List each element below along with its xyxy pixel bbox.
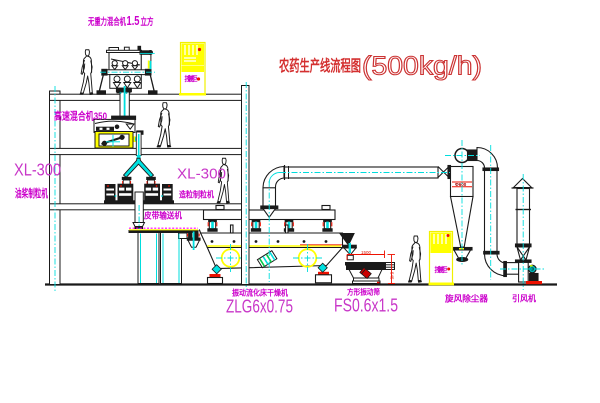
svg-text:(500kg/h): (500kg/h) xyxy=(362,53,482,81)
svg-text:ZLG6x0.75: ZLG6x0.75 xyxy=(226,296,293,317)
svg-text:XL-300: XL-300 xyxy=(14,160,61,180)
svg-text:造粒制粒机: 造粒制粒机 xyxy=(179,190,214,200)
svg-text:1.5: 1.5 xyxy=(127,14,140,28)
svg-text:高速混合机350: 高速混合机350 xyxy=(54,110,107,123)
svg-text:XL-300: XL-300 xyxy=(177,166,226,183)
svg-text:旋风除尘器: 旋风除尘器 xyxy=(444,294,489,304)
svg-text:油桨制粒机: 油桨制粒机 xyxy=(15,186,48,200)
svg-text:立方: 立方 xyxy=(141,16,154,28)
svg-text:引风机: 引风机 xyxy=(512,294,536,304)
svg-text:1500: 1500 xyxy=(361,250,372,255)
svg-text:皮带输送机: 皮带输送机 xyxy=(143,211,182,221)
svg-text:控制柜: 控制柜 xyxy=(435,265,448,274)
svg-text:无重力混合机: 无重力混合机 xyxy=(87,16,126,28)
svg-text:农药生产线流程图: 农药生产线流程图 xyxy=(278,56,361,75)
svg-text:FS0.6x1.5: FS0.6x1.5 xyxy=(334,295,398,316)
svg-text:545: 545 xyxy=(390,272,395,280)
svg-text:控制柜: 控制柜 xyxy=(185,74,198,83)
svg-text:Φ600: Φ600 xyxy=(455,182,467,187)
